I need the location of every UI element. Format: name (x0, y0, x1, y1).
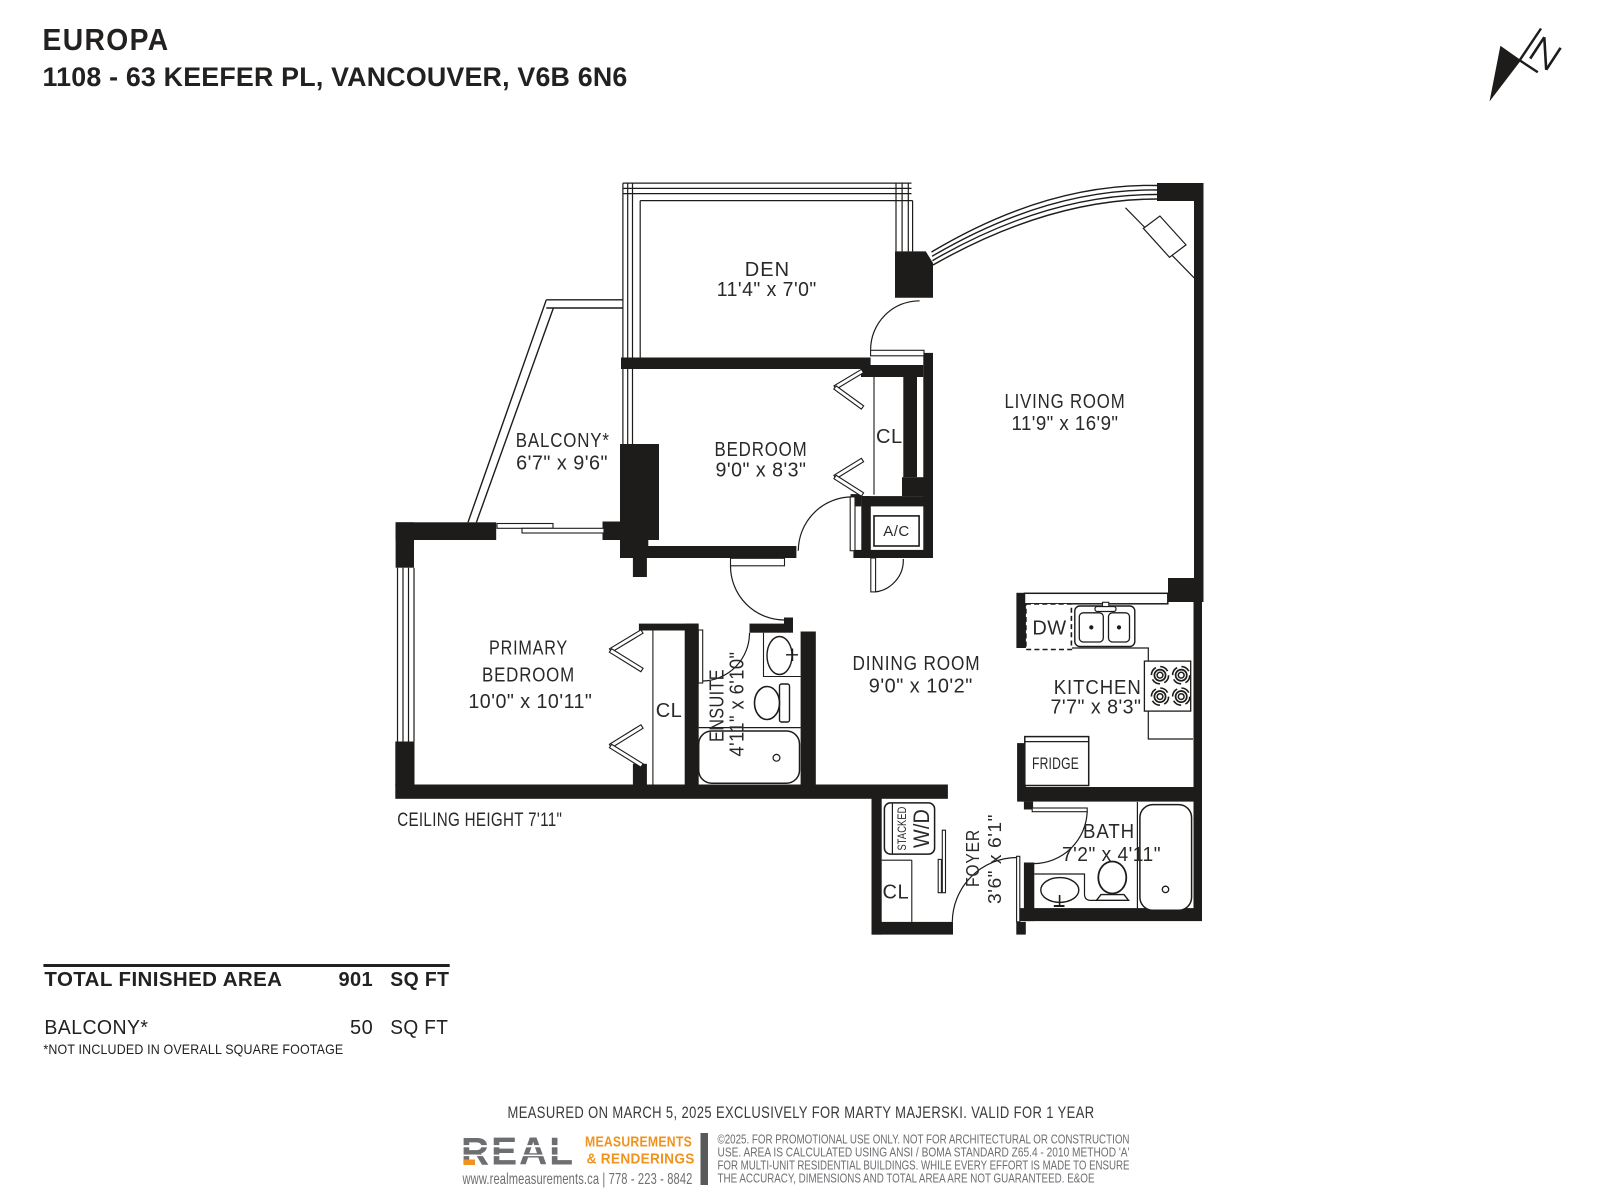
svg-text:9'0" x 10'2": 9'0" x 10'2" (869, 676, 973, 698)
svg-text:FOR MULTI-UNIT RESIDENTIAL BUI: FOR MULTI-UNIT RESIDENTIAL BUILDINGS. WH… (718, 1159, 1130, 1173)
svg-text:11'4" x 7'0": 11'4" x 7'0" (717, 279, 817, 301)
svg-text:©2025. FOR PROMOTIONAL USE ONL: ©2025. FOR PROMOTIONAL USE ONLY. NOT FOR… (718, 1133, 1130, 1147)
svg-text:SQ FT: SQ FT (390, 969, 449, 991)
svg-text:CL: CL (656, 700, 683, 722)
svg-text:BATH: BATH (1083, 821, 1135, 843)
svg-text:DINING ROOM: DINING ROOM (853, 653, 981, 675)
svg-text:*NOT INCLUDED IN OVERALL SQUAR: *NOT INCLUDED IN OVERALL SQUARE FOOTAGE (43, 1041, 343, 1057)
svg-text:SQ FT: SQ FT (390, 1017, 448, 1039)
svg-text:DW: DW (1032, 618, 1066, 640)
svg-text:4'11" x 6'10": 4'11" x 6'10" (727, 652, 749, 757)
svg-text:& RENDERINGS: & RENDERINGS (587, 1152, 695, 1168)
svg-text:A/C: A/C (883, 523, 910, 540)
svg-text:1108 - 63 KEEFER PL, VANCOUV: 1108 - 63 KEEFER PL, VANCOUVER, V6B 6N6 (43, 62, 628, 92)
svg-text:9'0" x 8'3": 9'0" x 8'3" (716, 460, 807, 482)
svg-text:TOTAL FINISHED AREA: TOTAL FINISHED AREA (44, 969, 282, 991)
svg-text:LIVING ROOM: LIVING ROOM (1005, 391, 1126, 413)
svg-text:MEASURED ON MARCH 5, 2025 EXCL: MEASURED ON MARCH 5, 2025 EXCLUSIVELY FO… (508, 1104, 1095, 1122)
svg-text:PRIMARY: PRIMARY (489, 638, 568, 660)
svg-text:STACKED: STACKED (895, 806, 909, 850)
svg-text:FOYER: FOYER (963, 829, 983, 887)
svg-text:THE ACCURACY, DIMENSIONS AND T: THE ACCURACY, DIMENSIONS AND TOTAL AREA … (718, 1172, 1095, 1186)
svg-text:BEDROOM: BEDROOM (715, 439, 808, 461)
svg-text:3'6" x 6'1": 3'6" x 6'1" (985, 814, 1005, 904)
svg-text:REAL: REAL (461, 1131, 575, 1174)
svg-text:6'7" x 9'6": 6'7" x 9'6" (516, 453, 608, 475)
svg-text:10'0" x 10'11": 10'0" x 10'11" (468, 691, 592, 713)
svg-text:CL: CL (876, 426, 903, 448)
svg-text:7'7" x 8'3": 7'7" x 8'3" (1051, 697, 1142, 719)
svg-text:BALCONY*: BALCONY* (516, 430, 610, 452)
svg-text:CEILING HEIGHT 7'11": CEILING HEIGHT 7'11" (397, 810, 562, 831)
svg-text:901: 901 (339, 969, 374, 991)
svg-text:11'9" x 16'9": 11'9" x 16'9" (1012, 413, 1119, 435)
svg-text:W/D: W/D (909, 809, 934, 848)
svg-text:50: 50 (350, 1017, 373, 1039)
svg-text:CL: CL (883, 882, 910, 904)
svg-text:www.realmeasurements.ca | 778: www.realmeasurements.ca | 778 - 223 - 88… (462, 1171, 693, 1188)
svg-text:USE. AREA IS CALCULATED USING: USE. AREA IS CALCULATED USING ANSI / BOM… (718, 1146, 1130, 1160)
svg-text:FRIDGE: FRIDGE (1032, 754, 1079, 773)
svg-text:7'2" x 4'11": 7'2" x 4'11" (1062, 844, 1161, 866)
svg-text:BEDROOM: BEDROOM (482, 665, 575, 687)
svg-text:BALCONY*: BALCONY* (44, 1017, 148, 1039)
svg-text:MEASUREMENTS: MEASUREMENTS (585, 1135, 692, 1151)
svg-text:EUROPA: EUROPA (43, 22, 170, 57)
svg-text:ENSUITE: ENSUITE (707, 669, 729, 742)
svg-text:DEN: DEN (745, 259, 790, 281)
